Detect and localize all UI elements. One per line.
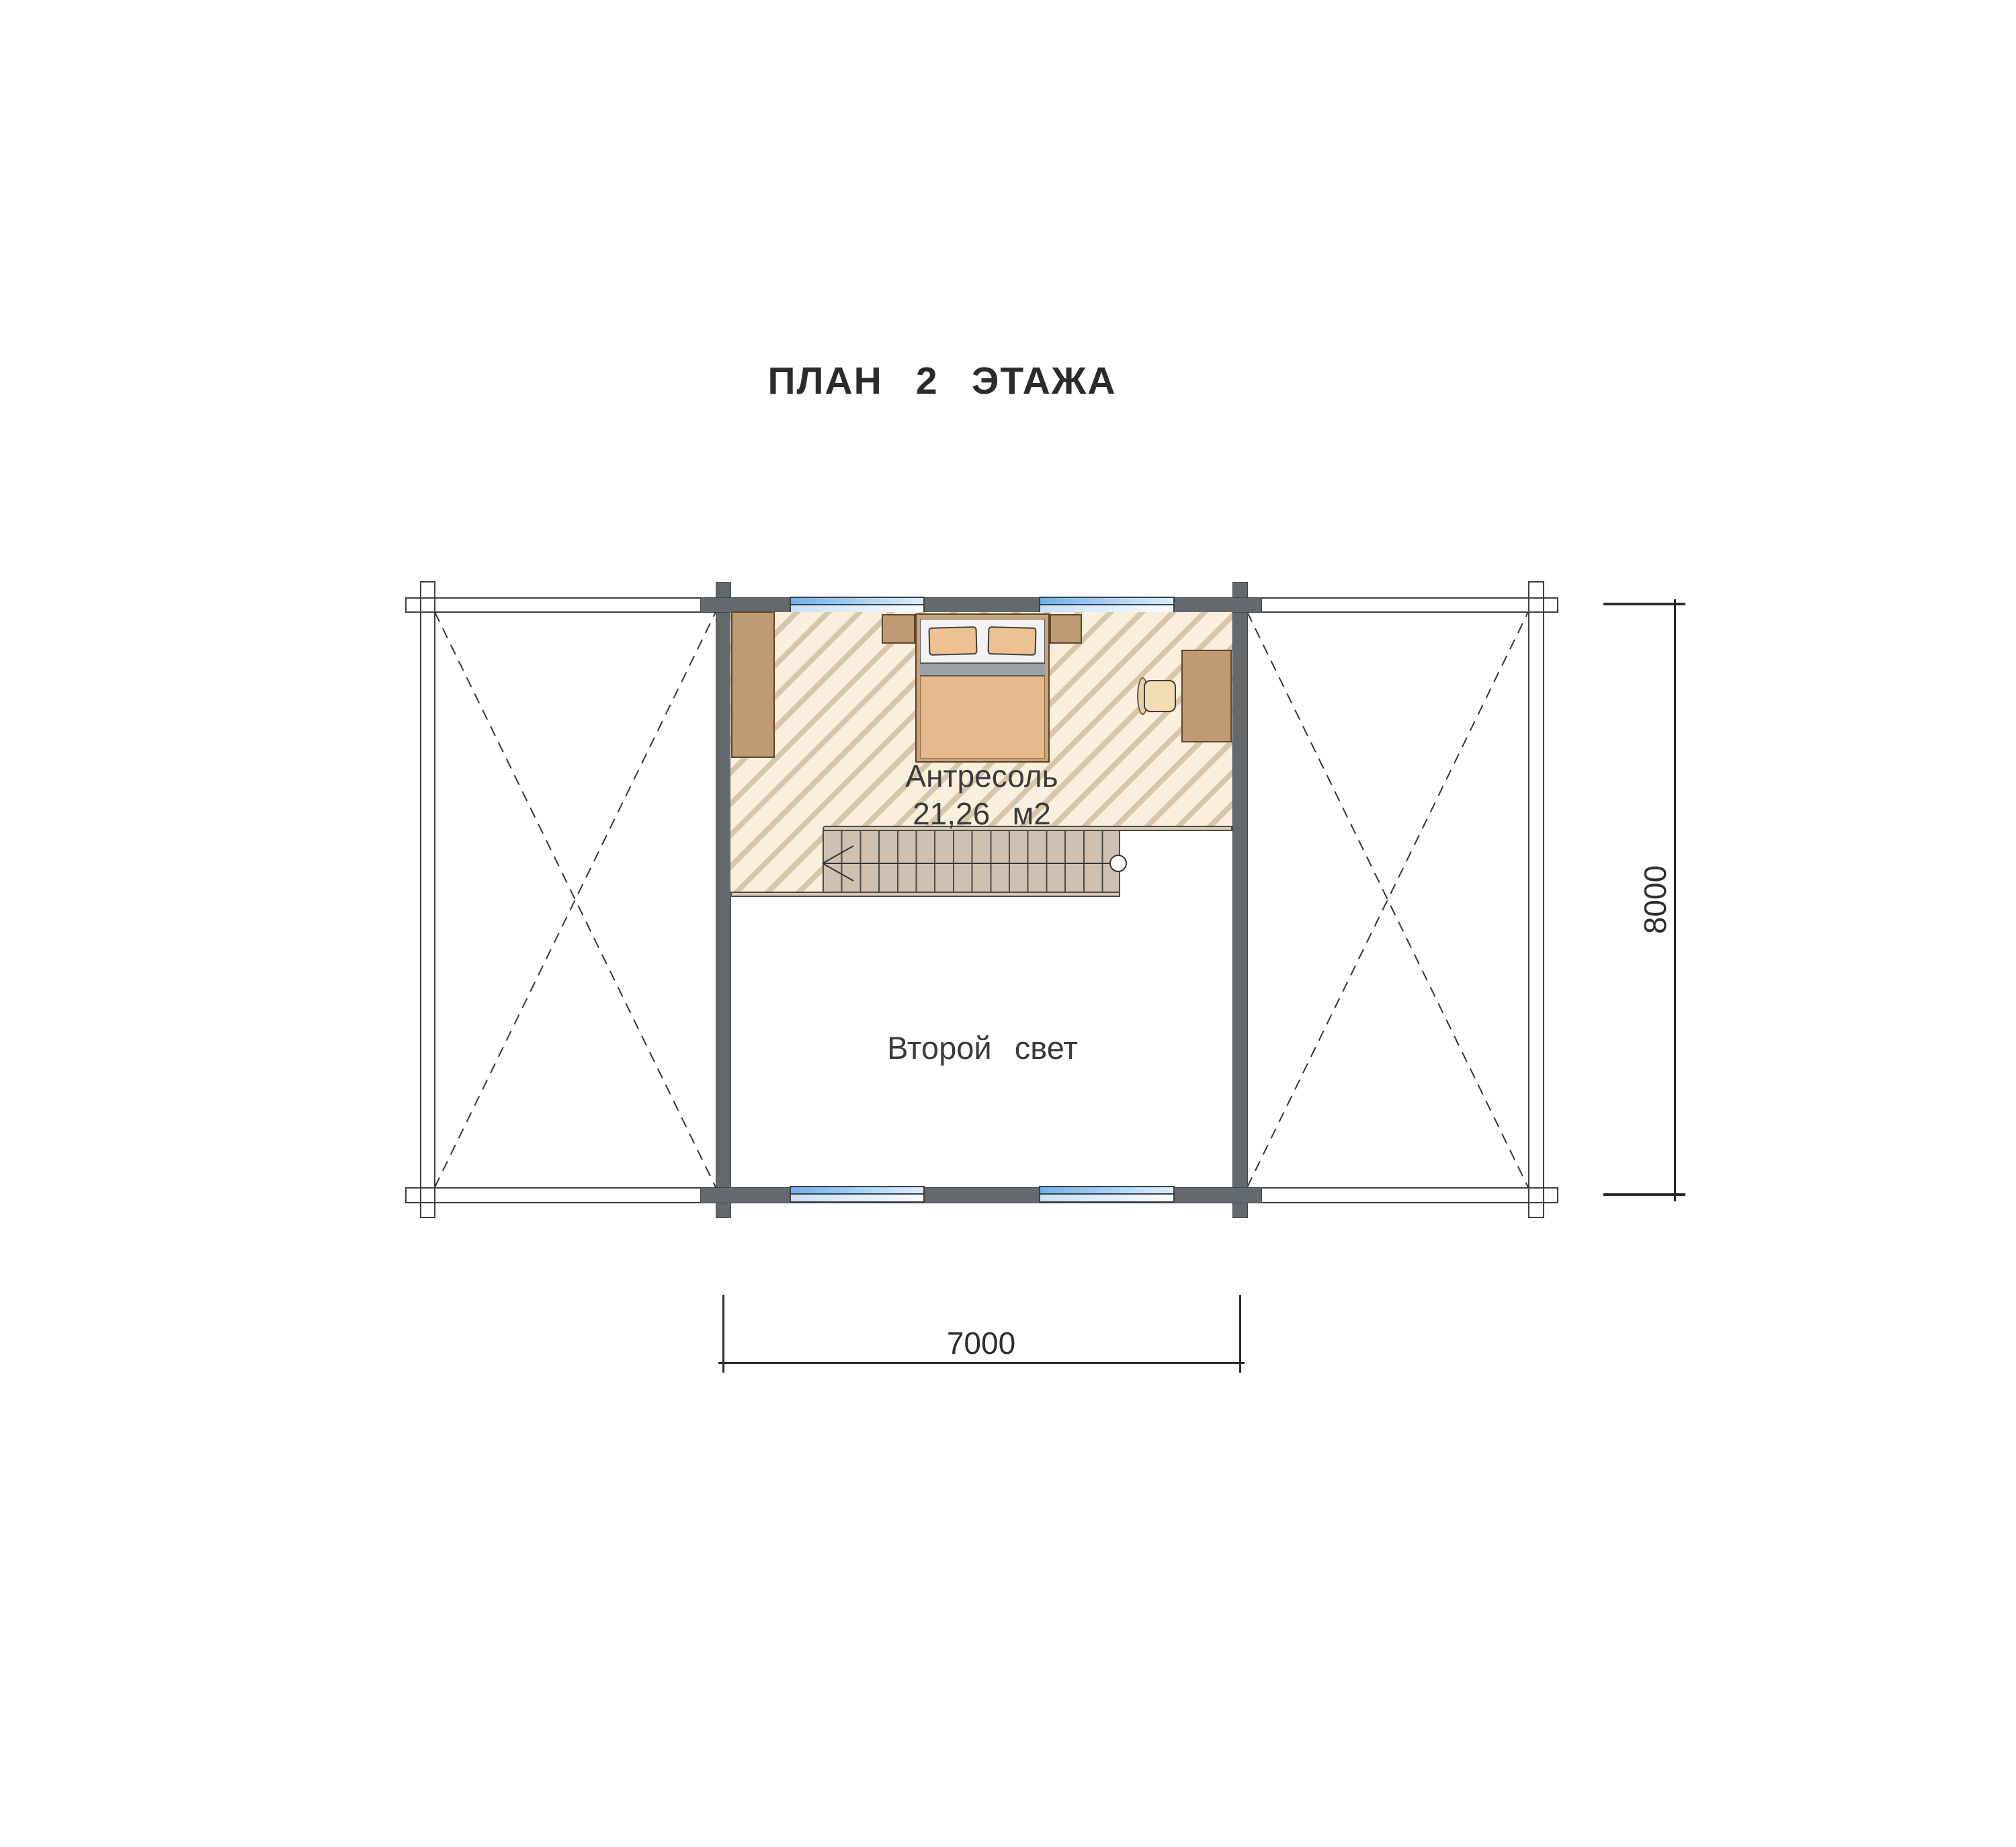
dimension-ext-left [722,1295,724,1373]
wall-left [716,582,731,1218]
left-flank-bottom-beam [405,1187,702,1203]
dimension-width-value: 7000 [880,1325,1082,1361]
void-label: Второй свет [781,1029,1184,1066]
stair-walk-line [816,840,1139,887]
chair-seat [1144,680,1176,712]
wall-bottom [700,1187,1262,1203]
page-title: ПЛАН 2 ЭТАЖА [640,359,1245,406]
bed-gray-band [920,663,1045,676]
wall-top [700,597,1262,613]
window-bottom-left [790,1186,925,1203]
dimension-tick-bottom [1603,1193,1685,1196]
desk [1181,650,1232,742]
window-top-left [790,597,925,613]
dimension-line-width [718,1362,1245,1364]
left-flank-post [420,581,435,1218]
left-flank-top-beam [405,597,702,613]
dimension-ext-right [1239,1295,1241,1373]
dimension-line-height [1674,599,1676,1201]
dimension-tick-top [1603,603,1685,605]
bed [915,613,1050,763]
floor-plan-canvas: ПЛАН 2 ЭТАЖА [0,0,2016,1847]
stair-start-marker [1110,855,1126,871]
pillow-left [928,626,977,656]
dimension-height-value: 8000 [1637,799,1673,1000]
mezzanine-label: Антресоль [780,758,1183,794]
right-flank-bottom-beam [1261,1187,1558,1203]
wardrobe [731,611,775,758]
left-flank-cross-brace [435,612,716,1187]
mezzanine-area-label: 21,26 м2 [780,796,1183,832]
window-top-right [1039,597,1175,613]
nightstand-right [1050,614,1082,644]
pillow-right [987,626,1036,656]
window-bottom-right [1039,1186,1175,1203]
wall-right [1232,582,1248,1218]
right-flank-top-beam [1261,597,1558,613]
bed-blanket [920,676,1045,759]
nightstand-left [882,614,915,644]
right-flank-post [1528,581,1544,1218]
right-flank-cross-brace [1247,612,1528,1187]
